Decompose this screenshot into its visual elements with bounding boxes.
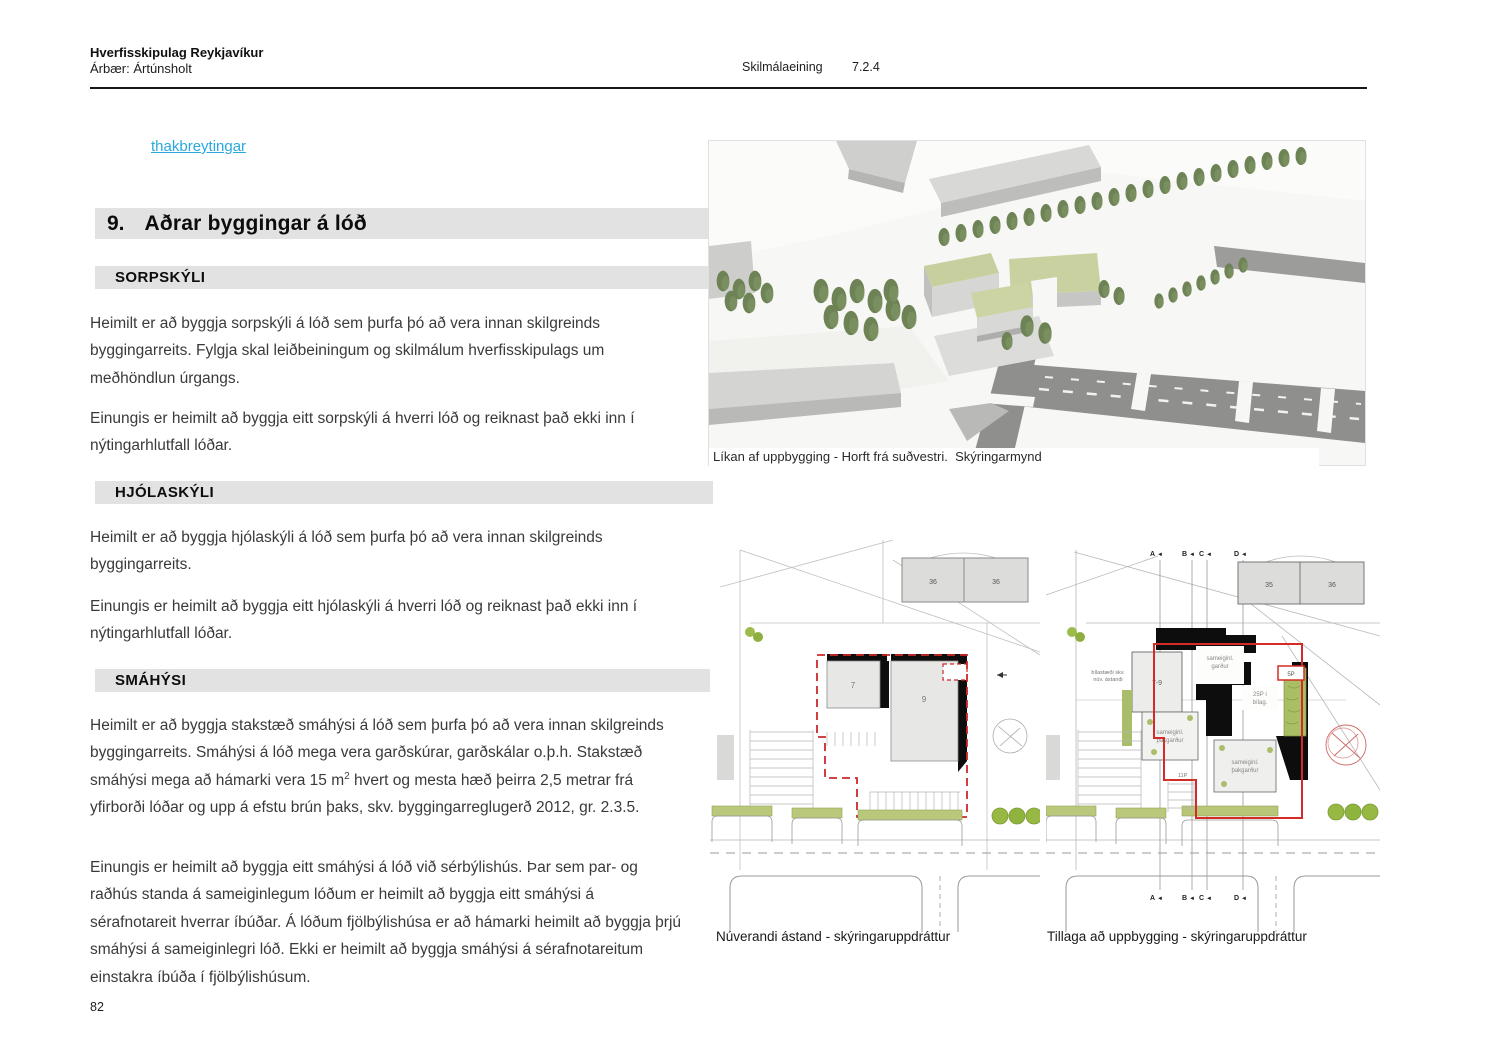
sorpskyli-paragraph-2: Einungis er heimilt að byggja eitt sorps… bbox=[90, 405, 682, 460]
subsection-smahysi-heading: SMÁHÝSI bbox=[95, 669, 713, 692]
svg-text:◄: ◄ bbox=[1241, 552, 1247, 558]
map2-marker-a-top: A bbox=[1150, 551, 1155, 558]
current-state-map: 36 36 7 9 bbox=[710, 540, 1040, 932]
map2-note-line2: núv. ástandi bbox=[1093, 677, 1122, 683]
section-number: 9. bbox=[107, 212, 125, 236]
header-meta-value: 7.2.4 bbox=[852, 60, 880, 74]
map1-bldg7-label: 7 bbox=[851, 681, 856, 690]
current-state-map-figure: 36 36 7 9 bbox=[710, 540, 1040, 932]
map2-pdeck-label-1: 25P í bbox=[1253, 692, 1267, 698]
current-state-caption: Núverandi ástand - skýringaruppdráttur bbox=[716, 929, 950, 944]
header-org-title: Hverfisskipulag Reykjavíkur bbox=[90, 45, 263, 60]
header-meta-label: Skilmálaeining bbox=[742, 60, 823, 74]
smahysi-paragraph-1: Heimilt er að byggja stakstæð smáhýsi á … bbox=[90, 712, 682, 822]
hjolaskyli-paragraph-1: Heimilt er að byggja hjólaskýli á lóð se… bbox=[90, 524, 682, 579]
map2-bldg35-label: 35 bbox=[1265, 582, 1273, 589]
svg-text:◄: ◄ bbox=[1206, 896, 1212, 902]
map2-5p-label: 5P bbox=[1287, 672, 1294, 678]
map2-marker-d-bot: D bbox=[1234, 895, 1239, 902]
svg-text:◄: ◄ bbox=[1157, 896, 1163, 902]
svg-text:◄: ◄ bbox=[1157, 552, 1163, 558]
smahysi-paragraph-2: Einungis er heimilt að byggja eitt smáhý… bbox=[90, 854, 682, 992]
proposal-caption: Tillaga að uppbygging - skýringaruppdrát… bbox=[1047, 929, 1307, 944]
map2-marker-a-bot: A bbox=[1150, 895, 1155, 902]
map2-marker-b-top: B bbox=[1182, 551, 1187, 558]
map1-existing-buildings-top: 36 36 bbox=[902, 553, 1028, 602]
map2-marker-d-top: D bbox=[1234, 551, 1239, 558]
subsection-hjolaskyli-heading: HJÓLASKÝLI bbox=[95, 481, 713, 504]
map2-marker-c-bot: C bbox=[1199, 895, 1204, 902]
header-rule bbox=[90, 87, 1367, 89]
model-render-figure bbox=[708, 140, 1366, 466]
sorpskyli-paragraph-1: Heimilt er að byggja sorpskýli á lóð sem… bbox=[90, 310, 682, 393]
map1-bldg9-label: 9 bbox=[922, 695, 927, 704]
header-district: Árbær: Ártúnsholt bbox=[90, 61, 192, 76]
section-title: Aðrar byggingar á lóð bbox=[145, 212, 367, 236]
subsection-sorpskyli-heading: SORPSKÝLI bbox=[95, 266, 713, 289]
map2-note-line1: bílastæði skv. bbox=[1091, 669, 1125, 676]
map2-roof1-label-1: sameiginl. bbox=[1156, 730, 1183, 736]
map1-bldg36a-label: 36 bbox=[929, 579, 937, 586]
map2-bldg36-label: 36 bbox=[1328, 582, 1336, 589]
subsection-sorpskyli-label: SORPSKÝLI bbox=[115, 269, 205, 286]
model-figure-caption: Líkan af uppbygging - Horft frá suðvestr… bbox=[709, 448, 1319, 466]
map2-marker-b-bot: B bbox=[1182, 895, 1187, 902]
page-number: 82 bbox=[90, 1000, 104, 1014]
map2-roof2-label-1: sameiginl. bbox=[1231, 760, 1258, 766]
hjolaskyli-paragraph-2: Einungis er heimilt að byggja eitt hjóla… bbox=[90, 593, 682, 648]
subsection-smahysi-label: SMÁHÝSI bbox=[115, 672, 186, 689]
map2-pdeck-label-2: bílag. bbox=[1253, 700, 1268, 706]
proposal-map: A◄ B◄ C◄ D◄ A◄ B◄ C◄ D◄ 35 36 bbox=[1046, 540, 1380, 932]
map2-small-structure bbox=[1046, 735, 1060, 780]
map2-garden-label-1: sameiginl. bbox=[1206, 656, 1233, 662]
map2-garden-label-2: garður bbox=[1211, 663, 1228, 670]
map1-bldg36b-label: 36 bbox=[992, 579, 1000, 586]
map2-11p-label: 11P bbox=[1178, 773, 1188, 779]
map1-small-structure bbox=[717, 735, 734, 780]
map2-roof2-label-2: þakgarður bbox=[1231, 767, 1258, 774]
section-heading: 9. Aðrar byggingar á lóð bbox=[95, 208, 710, 239]
subsection-hjolaskyli-label: HJÓLASKÝLI bbox=[115, 484, 214, 501]
svg-text:◄: ◄ bbox=[1206, 552, 1212, 558]
model-render-image bbox=[709, 141, 1365, 465]
svg-text:◄: ◄ bbox=[1241, 896, 1247, 902]
svg-text:◄: ◄ bbox=[1189, 552, 1195, 558]
svg-text:◄: ◄ bbox=[1189, 896, 1195, 902]
proposal-map-figure: A◄ B◄ C◄ D◄ A◄ B◄ C◄ D◄ 35 36 bbox=[1046, 540, 1380, 932]
map2-marker-c-top: C bbox=[1199, 551, 1204, 558]
map2-existing-buildings-top: 35 36 bbox=[1238, 556, 1364, 604]
document-page: Hverfisskipulag Reykjavíkur Árbær: Ártún… bbox=[0, 0, 1500, 1061]
thakbreytingar-link[interactable]: thakbreytingar bbox=[151, 138, 246, 155]
